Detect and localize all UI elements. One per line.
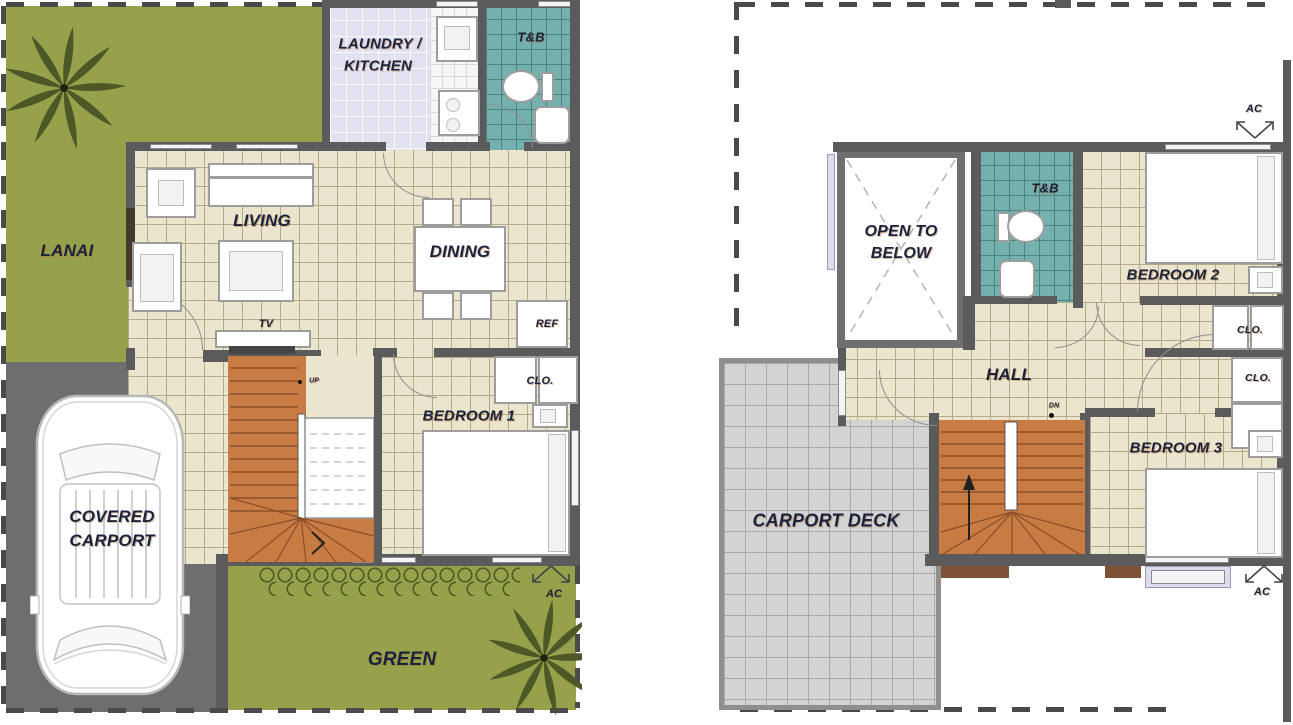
label-bedroom1: BEDROOM 1 <box>423 408 516 425</box>
toilet-bowl-icon <box>502 70 540 103</box>
label-covered-carport: CARPORT <box>69 531 154 551</box>
outline-top <box>737 2 1281 7</box>
label-dn: DN <box>1049 403 1060 410</box>
wall-hall-left-lower <box>838 416 846 426</box>
label-ac-bottom: AC <box>1254 586 1270 598</box>
ac-unit-icon <box>528 564 574 586</box>
label-tv: TV <box>259 318 273 330</box>
label-bedroom2: BEDROOM 2 <box>1127 267 1220 284</box>
outline-left <box>734 2 739 334</box>
stairs-ground <box>228 356 374 562</box>
label-ac-ground: AC <box>546 588 562 600</box>
wall-top-stub <box>1055 0 1071 8</box>
sofa-icon <box>208 177 314 207</box>
palm-tree-icon <box>0 8 136 160</box>
coffee-table-top-icon <box>229 251 283 291</box>
stove-icon <box>438 90 480 136</box>
lamp-icon <box>158 180 184 206</box>
lavatory-icon <box>534 106 570 144</box>
label-closet-bedroom3: CLO. <box>1245 372 1271 384</box>
tv-icon <box>229 346 295 354</box>
label-bedroom3: BEDROOM 3 <box>1130 440 1223 457</box>
ledge <box>1105 566 1141 578</box>
stair-start-dot <box>298 380 302 384</box>
label-hall: HALL <box>986 365 1032 385</box>
dining-chair-icon <box>460 292 492 320</box>
nightstand-top-icon <box>1257 272 1273 288</box>
wall-stairs-left <box>929 413 939 566</box>
second-floor-plan: OPEN TO BELOW T&B BEDROOM 2 CLO. CLO. HA… <box>707 0 1293 725</box>
label-open-to-below: BELOW <box>871 245 932 263</box>
label-closet-bedroom1: CLO. <box>526 375 553 387</box>
ac-unit-icon <box>1232 118 1278 140</box>
stairs-second-detail <box>939 420 1085 554</box>
wall-stairs-right <box>373 348 382 563</box>
window-bay-inner <box>1151 570 1225 584</box>
stairs-second <box>939 420 1085 554</box>
burner-icon <box>446 118 460 132</box>
nightstand-top-icon <box>540 409 556 423</box>
window-bottom-2 <box>492 557 542 563</box>
room-laundry <box>330 4 432 150</box>
wall-tb-right <box>570 0 580 150</box>
stair-start-dot <box>1049 413 1054 418</box>
pillow-icon <box>1257 156 1275 260</box>
sofa-back-icon <box>208 163 314 178</box>
lavatory-icon <box>999 260 1035 298</box>
wall-laundry-left <box>322 0 330 150</box>
wall-bedroom2-bottom <box>1140 296 1285 305</box>
door-gap-deck <box>838 370 846 416</box>
dining-chair-icon <box>422 292 454 320</box>
window-living-2 <box>236 144 298 149</box>
label-open-to-below: OPEN TO <box>864 223 937 241</box>
dining-chair-icon <box>460 198 492 226</box>
nightstand-top-icon <box>1257 436 1273 452</box>
label-lanai: LANAI <box>41 241 94 261</box>
window-bedroom1-right <box>571 430 579 506</box>
window-bedroom2-top <box>1165 144 1271 150</box>
ledge <box>941 566 1009 578</box>
wall-living-left-lower <box>126 348 135 370</box>
label-tb-second: T&B <box>1031 181 1058 196</box>
window-kitchen <box>436 1 478 7</box>
window-otb-left <box>827 154 835 270</box>
label-laundry-kitchen: KITCHEN <box>344 58 412 75</box>
wall-hall-left-upper <box>838 348 846 370</box>
armchair-cushion-icon <box>140 254 174 302</box>
dining-chair-icon <box>422 198 454 226</box>
sink-basin-icon <box>444 26 470 50</box>
stairs-ground-detail <box>228 356 374 562</box>
label-living: LIVING <box>233 211 291 231</box>
label-dining: DINING <box>430 242 491 262</box>
shrub-row-icon <box>258 566 520 596</box>
label-closet-bedroom2: CLO. <box>1237 324 1263 336</box>
palm-tree-icon <box>482 592 582 718</box>
toilet-bowl-icon <box>1007 210 1045 243</box>
floor-plan-sheet: LANAI LAUNDRY / KITCHEN T&B LIVING DININ… <box>0 0 1293 725</box>
label-ac-top: AC <box>1246 103 1262 115</box>
label-laundry-kitchen: LAUNDRY / <box>339 36 422 53</box>
wall-hall-bedroom3-right <box>1215 408 1231 417</box>
wall-kitchen-bottom <box>426 142 490 151</box>
burner-icon <box>446 98 460 112</box>
label-green: GREEN <box>368 649 437 671</box>
label-up: UP <box>309 378 319 385</box>
label-tb-ground: T&B <box>517 30 544 45</box>
label-ref: REF <box>536 318 559 330</box>
window-tb <box>538 1 572 7</box>
window-living-1 <box>150 144 212 149</box>
label-carport-deck: CARPORT DECK <box>752 511 899 532</box>
pillow-icon <box>548 434 566 552</box>
ac-unit-icon <box>1241 564 1287 586</box>
wall-otb-tb <box>971 142 981 304</box>
wall-laundry-bottom <box>330 142 386 151</box>
toilet-tank-icon <box>541 72 554 102</box>
wall-otb-connector <box>963 296 975 350</box>
ground-floor-plan: LANAI LAUNDRY / KITCHEN T&B LIVING DININ… <box>0 0 582 725</box>
pillow-icon <box>1257 472 1275 554</box>
wall-tb-right <box>1073 142 1083 308</box>
label-covered-carport: COVERED <box>69 507 154 527</box>
